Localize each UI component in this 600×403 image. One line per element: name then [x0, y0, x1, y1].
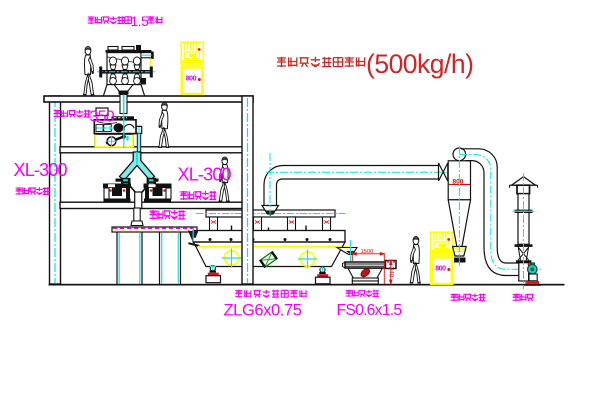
svg-text:350: 350: [90, 109, 115, 126]
svg-text:XL-300: XL-300: [178, 165, 232, 185]
svg-text:XL-300: XL-300: [14, 160, 68, 180]
svg-text:340: 340: [388, 267, 395, 278]
svg-text:800: 800: [453, 179, 464, 186]
svg-text:(500kg/h): (500kg/h): [366, 49, 473, 79]
svg-text:1.5: 1.5: [131, 13, 149, 29]
svg-text:ZLG6x0.75: ZLG6x0.75: [224, 302, 302, 320]
svg-text:1500: 1500: [361, 249, 374, 255]
svg-text:FS0.6x1.5: FS0.6x1.5: [337, 302, 403, 319]
